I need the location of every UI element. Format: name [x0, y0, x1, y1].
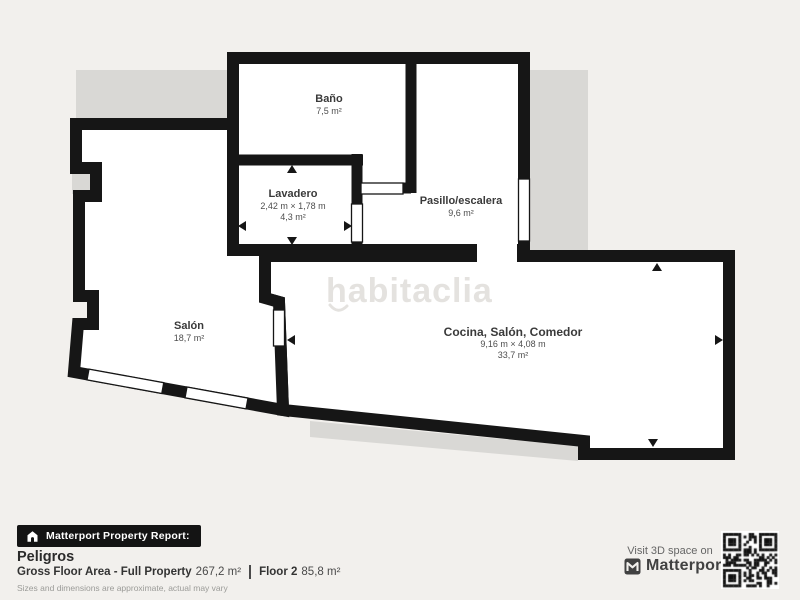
room-area: 9,6 m² — [420, 208, 503, 219]
floor-label: Floor 2 — [259, 566, 297, 578]
floor-area-value: 85,8 m² — [301, 566, 340, 578]
room-name: Baño — [315, 93, 343, 106]
room-area: 33,7 m² — [444, 350, 583, 361]
habitaclia-watermark: habitaclia — [326, 274, 493, 308]
room-name: Pasillo/escalera — [420, 195, 503, 208]
floor-plan — [0, 0, 800, 520]
room-label-bano: Baño 7,5 m² — [315, 93, 343, 117]
room-dimensions: 9,16 m × 4,08 m — [444, 339, 583, 350]
door-lavadero — [352, 204, 363, 242]
property-report-page: habitaclia Baño 7,5 m² Lavadero 2,42 m ×… — [0, 0, 800, 600]
door-salon-cocina — [274, 310, 285, 346]
room-name: Lavadero — [260, 188, 325, 201]
gross-area-label: Gross Floor Area - Full Property — [17, 566, 192, 578]
report-badge-label: Matterport Property Report: — [46, 530, 190, 542]
house-icon — [26, 530, 39, 543]
room-area: 18,7 m² — [174, 333, 205, 344]
room-label-pasillo: Pasillo/escalera 9,6 m² — [420, 195, 503, 219]
visit-3d-text: Visit 3D space on — [625, 545, 715, 557]
property-name: Peligros — [17, 549, 74, 565]
room-area: 4,3 m² — [260, 212, 325, 223]
matterport-report-badge: Matterport Property Report: — [17, 525, 201, 547]
window-pasillo — [519, 179, 530, 241]
room-area: 7,5 m² — [315, 106, 343, 117]
room-name: Salón — [174, 320, 205, 333]
divider — [249, 565, 251, 579]
matterport-logo: Matterport — [624, 557, 727, 575]
qr-code — [721, 531, 779, 589]
door-bano — [361, 183, 403, 194]
matterport-wordmark: Matterport — [646, 557, 727, 575]
room-label-cocina: Cocina, Salón, Comedor 9,16 m × 4,08 m 3… — [444, 326, 583, 361]
floor-area-summary: Gross Floor Area - Full Property 267,2 m… — [17, 565, 340, 579]
room-label-salon: Salón 18,7 m² — [174, 320, 205, 344]
opening-pasillo-cocina — [477, 240, 517, 264]
room-label-lavadero: Lavadero 2,42 m × 1,78 m 4,3 m² — [260, 188, 325, 223]
room-name: Cocina, Salón, Comedor — [444, 326, 583, 339]
matterport-m-icon — [624, 558, 641, 575]
disclaimer-text: Sizes and dimensions are approximate, ac… — [17, 583, 228, 593]
gross-area-value: 267,2 m² — [196, 566, 241, 578]
watermark-smile-icon — [327, 303, 353, 315]
room-dimensions: 2,42 m × 1,78 m — [260, 201, 325, 212]
